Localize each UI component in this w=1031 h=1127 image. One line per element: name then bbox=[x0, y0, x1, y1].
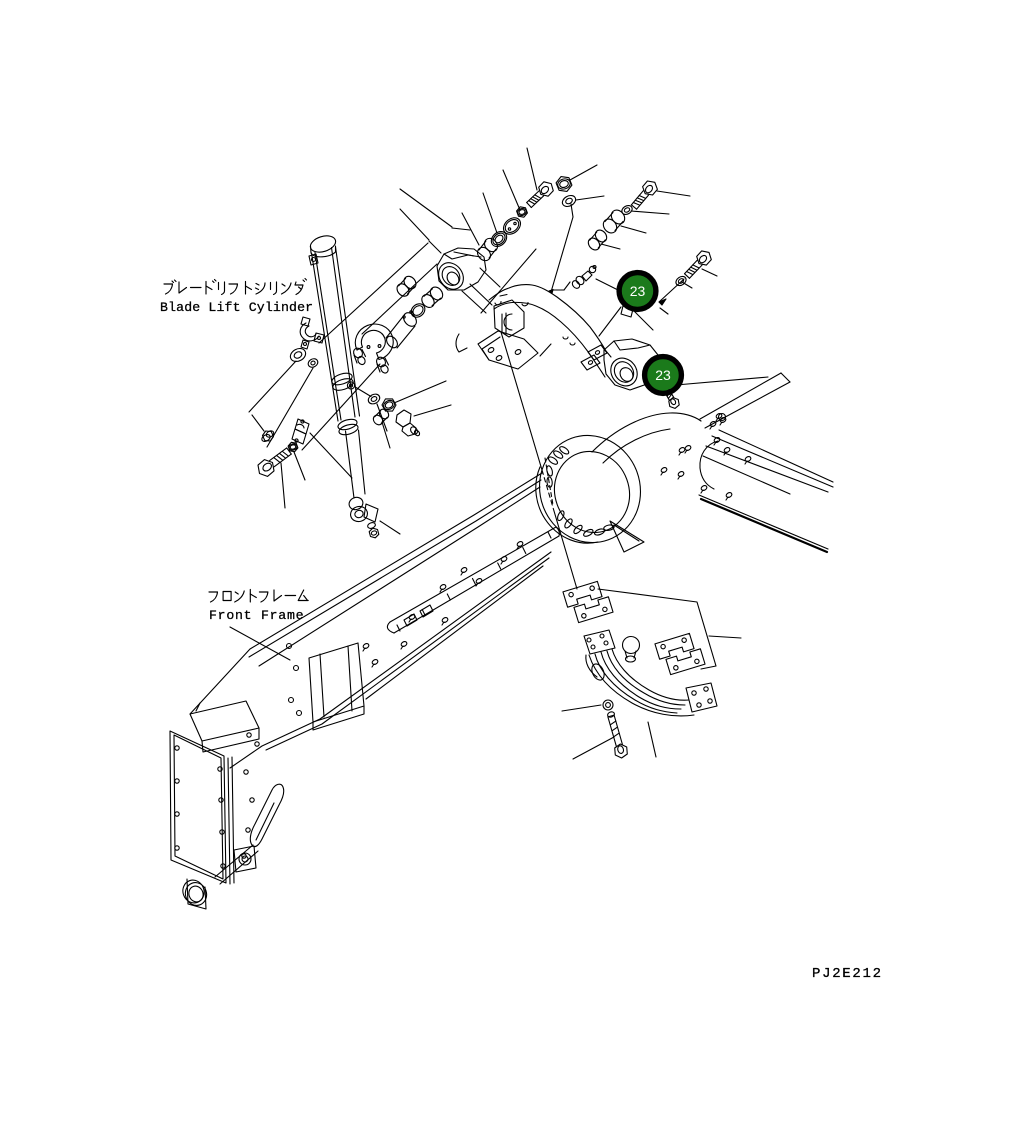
svg-text:Blade Lift Cylinder: Blade Lift Cylinder bbox=[160, 300, 313, 315]
svg-text:23: 23 bbox=[655, 367, 671, 383]
svg-text:23: 23 bbox=[630, 283, 646, 299]
svg-text:Front Frame: Front Frame bbox=[209, 608, 304, 623]
svg-text:PJ2E212: PJ2E212 bbox=[812, 966, 883, 982]
